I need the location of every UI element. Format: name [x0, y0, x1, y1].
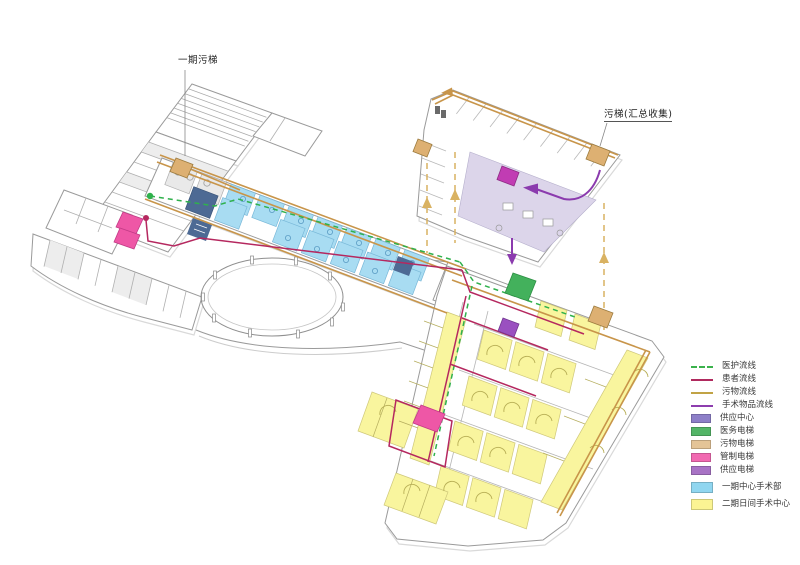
- legend-item-waste-elevator: 污物电梯: [691, 438, 799, 451]
- legend-label: 污物电梯: [720, 440, 754, 449]
- patient-flow-swatch: [691, 379, 713, 381]
- legend-item-phase2-day-surgery: 二期日间手术中心: [691, 498, 799, 511]
- supply-elevator-swatch: [691, 466, 711, 476]
- legend-label: 医务电梯: [720, 427, 754, 436]
- legend-label: 二期日间手术中心: [722, 500, 790, 509]
- legend-label: 供应中心: [720, 414, 754, 423]
- legend-item-supply-center: 供应中心: [691, 412, 799, 425]
- legend-item-medical-elevator: 医务电梯: [691, 425, 799, 438]
- legend-item-surgical-goods-flow: 手术物品流线: [691, 399, 799, 412]
- phase2-day-surgery-swatch: [691, 499, 713, 511]
- legend-item-supply-elevator: 供应电梯: [691, 464, 799, 477]
- legend-item-patient-flow: 患者流线: [691, 373, 799, 386]
- medical-elevator-swatch: [691, 427, 711, 437]
- staff-flow-swatch: [691, 366, 713, 368]
- down-arrow-icon: [507, 254, 517, 265]
- waste-elevator-swatch: [691, 440, 711, 450]
- surgical-goods-flow-swatch: [691, 405, 713, 407]
- legend-item-waste-flow: 污物流线: [691, 386, 799, 399]
- staff-flow-start-dot: [147, 193, 153, 199]
- legend-item-phase1-or-center: 一期中心手术部: [691, 481, 799, 494]
- phase1-or-center-swatch: [691, 482, 713, 494]
- floor-plan-page: 一期污梯 污梯(汇总收集) 医护流线 患者流线 污物流线 手术物品流线 供应中心…: [0, 0, 800, 565]
- phase1-waste-elevator-label: 一期污梯: [178, 52, 218, 66]
- legend-label: 手术物品流线: [722, 401, 773, 410]
- legend-label: 一期中心手术部: [722, 483, 782, 492]
- legend-item-control-elevator: 管制电梯: [691, 451, 799, 464]
- collect-waste-elevator-label: 污梯(汇总收集): [604, 106, 672, 122]
- legend-label: 医护流线: [722, 362, 756, 371]
- day-surgery-wing: [358, 266, 664, 546]
- patient-flow-start-dot: [143, 215, 149, 221]
- waste-flow-swatch: [691, 392, 713, 394]
- legend-label: 供应电梯: [720, 466, 754, 475]
- supply-center-swatch: [691, 414, 711, 424]
- control-elevator-swatch: [691, 453, 711, 463]
- floor-plan-canvas: [0, 0, 800, 565]
- legend-label: 患者流线: [722, 375, 756, 384]
- legend-label: 污物流线: [722, 388, 756, 397]
- legend-label: 管制电梯: [720, 453, 754, 462]
- legend-item-staff-flow: 医护流线: [691, 360, 799, 373]
- legend: 医护流线 患者流线 污物流线 手术物品流线 供应中心 医务电梯 污物电梯 管制电…: [691, 360, 799, 511]
